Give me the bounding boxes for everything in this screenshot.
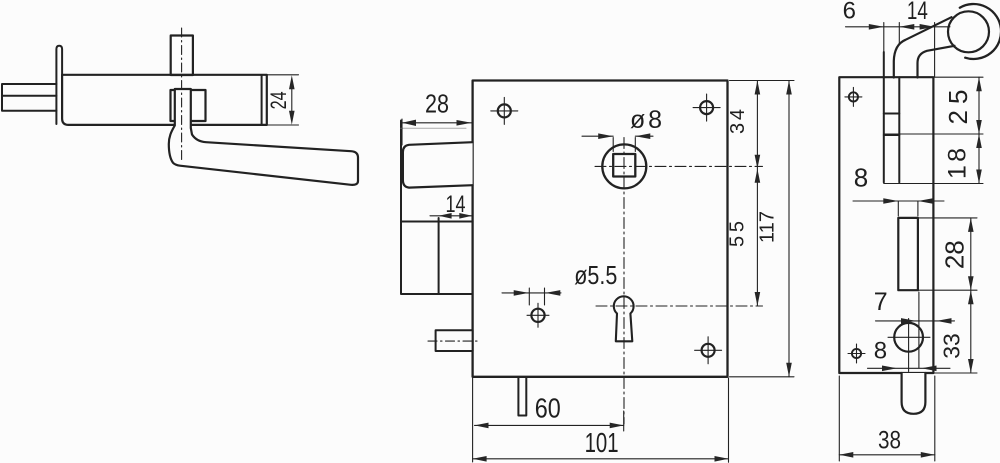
svg-text:7: 7	[874, 288, 888, 316]
svg-text:33: 33	[939, 333, 965, 359]
svg-text:6: 6	[843, 0, 856, 25]
svg-text:ø5.5: ø5.5	[574, 260, 617, 290]
svg-text:18: 18	[944, 148, 972, 179]
svg-text:8: 8	[874, 338, 887, 365]
svg-text:28: 28	[940, 240, 970, 269]
svg-text:28: 28	[425, 89, 449, 119]
svg-text:14: 14	[446, 191, 466, 218]
svg-text:34: 34	[727, 109, 749, 134]
svg-text:60: 60	[535, 393, 561, 424]
svg-text:55: 55	[727, 221, 749, 247]
svg-text:117: 117	[757, 211, 779, 243]
svg-text:101: 101	[585, 427, 619, 458]
svg-text:14: 14	[907, 0, 928, 25]
svg-text:24: 24	[266, 91, 291, 109]
svg-text:25: 25	[943, 90, 973, 125]
svg-text:8: 8	[854, 163, 868, 193]
svg-text:38: 38	[878, 427, 901, 455]
